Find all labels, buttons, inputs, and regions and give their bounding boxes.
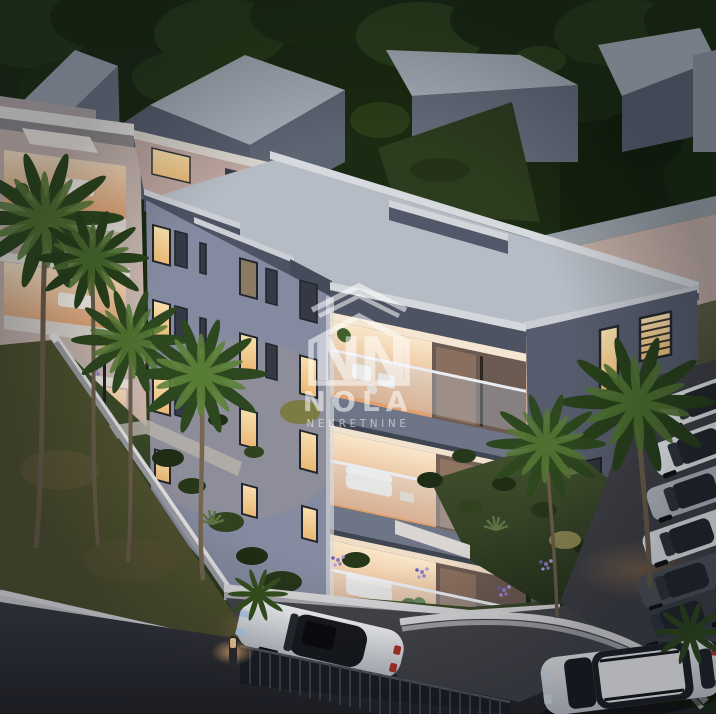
scene-render: NN NOLA NEKRETNINE xyxy=(0,0,716,714)
watermark-subtitle: NEKRETNINE xyxy=(306,418,409,430)
watermark-brand-name: NOLA xyxy=(303,385,414,418)
real-estate-render: NN NOLA NEKRETNINE xyxy=(0,0,716,714)
